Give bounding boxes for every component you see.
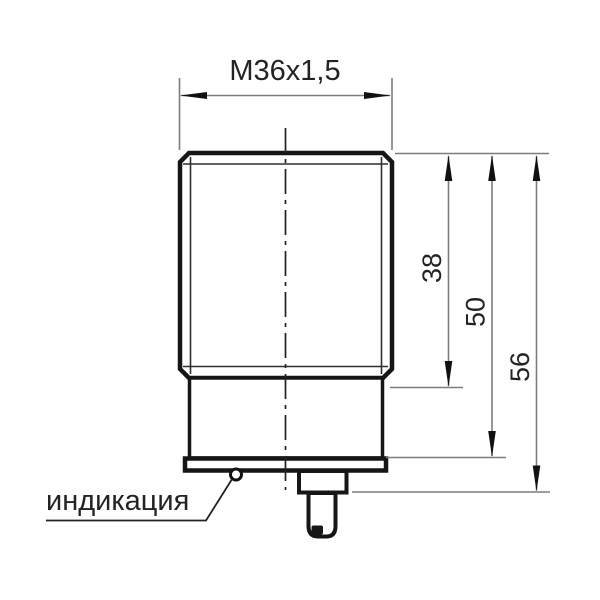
arrowhead-up-icon (445, 155, 453, 181)
indication-callout: индикация (46, 480, 232, 521)
indicator-led (231, 469, 242, 480)
arrowhead-down-icon (533, 466, 541, 492)
drawing-svg: М36х1,5 38 50 56 (0, 0, 600, 600)
arrowhead-right-icon (364, 92, 391, 99)
indication-label: индикация (46, 485, 189, 517)
arrowhead-down-icon (445, 361, 453, 387)
arrowhead-left-icon (180, 92, 207, 99)
arrowhead-up-icon (533, 155, 541, 181)
dimension-38-label: 38 (417, 253, 447, 283)
dimension-38: 38 (390, 155, 463, 388)
thread-dimension-label: М36х1,5 (229, 55, 340, 87)
dimension-56-label: 56 (505, 352, 535, 382)
dimension-50-label: 50 (461, 297, 491, 327)
dimension-50: 50 (386, 155, 506, 458)
sensor-dimensional-drawing: М36х1,5 38 50 56 (0, 0, 600, 600)
connector-hex-base (299, 471, 347, 493)
connector-plug-notch (312, 526, 324, 535)
arrowhead-up-icon (488, 155, 496, 181)
arrowhead-down-icon (488, 431, 496, 457)
